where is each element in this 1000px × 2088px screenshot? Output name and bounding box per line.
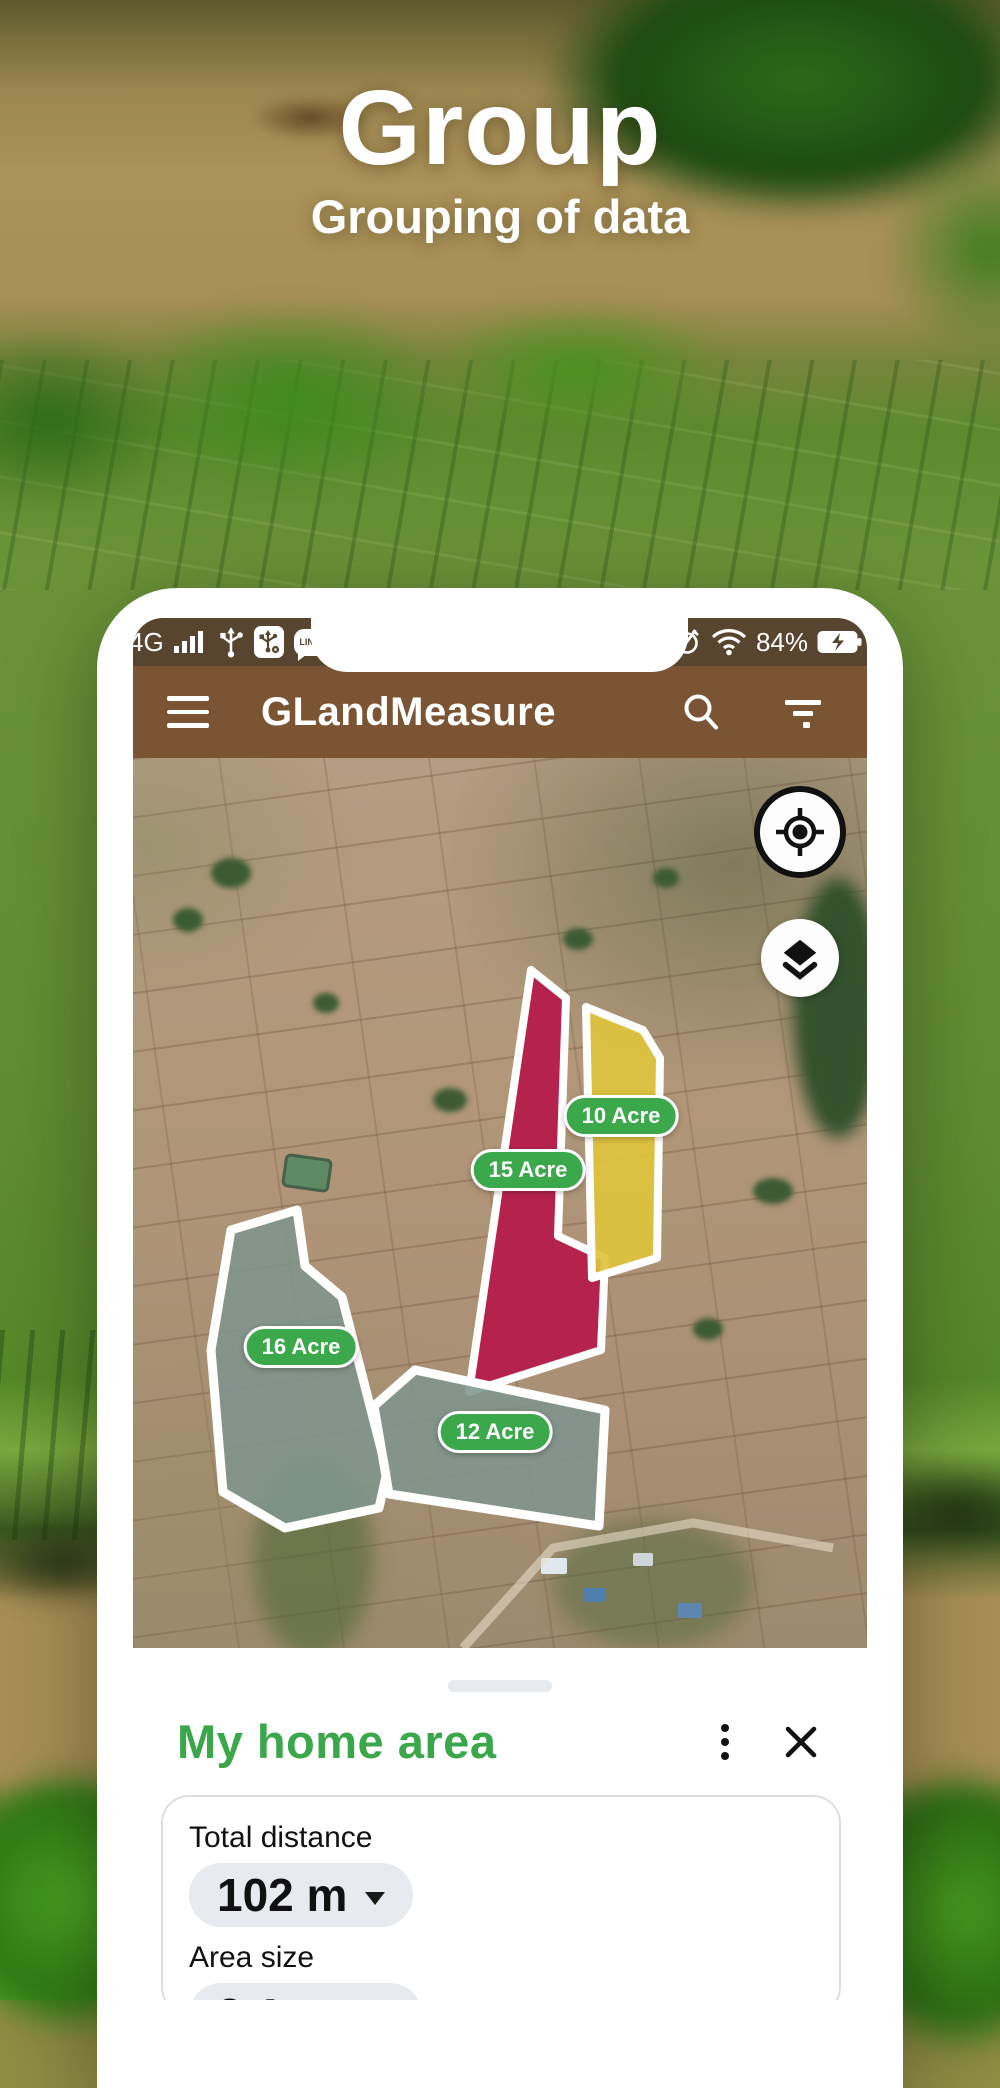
menu-icon[interactable] (167, 696, 209, 728)
more-options-icon[interactable] (715, 1718, 735, 1766)
measurement-card: Total distance 102 m Area size 2 Acre (161, 1795, 841, 2000)
search-icon[interactable] (679, 690, 723, 734)
app-title: GLandMeasure (261, 690, 556, 735)
area-size-dropdown[interactable]: 2 Acre (189, 1983, 422, 2000)
area-name-title: My home area (177, 1714, 715, 1769)
satellite-map[interactable]: 10 Acre 15 Acre 16 Acre 12 Acre (133, 758, 867, 1648)
palm-cluster-blob (430, 300, 730, 440)
my-location-button[interactable] (754, 786, 846, 878)
close-icon[interactable] (781, 1722, 821, 1762)
battery-charging-icon (817, 629, 863, 655)
layers-icon (777, 935, 823, 981)
total-distance-label: Total distance (189, 1821, 839, 1855)
usb-icon (218, 626, 244, 658)
bottom-sheet-header: My home area (177, 1714, 821, 1769)
signal-strength-icon (174, 629, 208, 655)
parcel-label-15-acre[interactable]: 15 Acre (471, 1149, 586, 1191)
hero-text-block: Group Grouping of data (0, 70, 1000, 244)
phone-mockup: 4G (97, 588, 903, 2088)
parcel-label-12-acre[interactable]: 12 Acre (438, 1411, 553, 1453)
wifi-icon (711, 628, 747, 656)
battery-percent-label: 84% (756, 627, 808, 658)
measured-parcels-layer (133, 758, 867, 1648)
status-bar-left: 4G (133, 618, 326, 666)
status-bar-right: 84% (672, 618, 863, 666)
paddy-field-texture-left (0, 1330, 110, 1540)
page-subtitle: Grouping of data (0, 189, 1000, 244)
road-path (463, 1523, 833, 1648)
gps-crosshair-icon (774, 806, 826, 858)
total-distance-value: 102 m (217, 1868, 347, 1922)
parcel-label-10-acre[interactable]: 10 Acre (564, 1095, 679, 1137)
app-screen: 4G (133, 618, 867, 2000)
bottom-sheet: My home area Total distance 102 m Area s… (133, 1648, 867, 2000)
filter-icon[interactable] (781, 692, 825, 732)
network-type-label: 4G (133, 627, 164, 658)
parcel-16-acre[interactable] (211, 1210, 387, 1528)
usb-settings-icon (254, 626, 284, 658)
area-size-label: Area size (189, 1941, 839, 1975)
area-size-value: 2 Acre (217, 1988, 356, 2000)
parcel-10-acre[interactable] (586, 1007, 660, 1278)
page-title: Group (0, 70, 1000, 187)
total-distance-dropdown[interactable]: 102 m (189, 1863, 413, 1927)
map-layers-button[interactable] (761, 919, 839, 997)
parcel-label-16-acre[interactable]: 16 Acre (244, 1326, 359, 1368)
drag-handle[interactable] (448, 1680, 552, 1692)
chevron-down-icon (365, 1892, 385, 1905)
app-bar: GLandMeasure (133, 666, 867, 758)
phone-notch (311, 588, 688, 672)
